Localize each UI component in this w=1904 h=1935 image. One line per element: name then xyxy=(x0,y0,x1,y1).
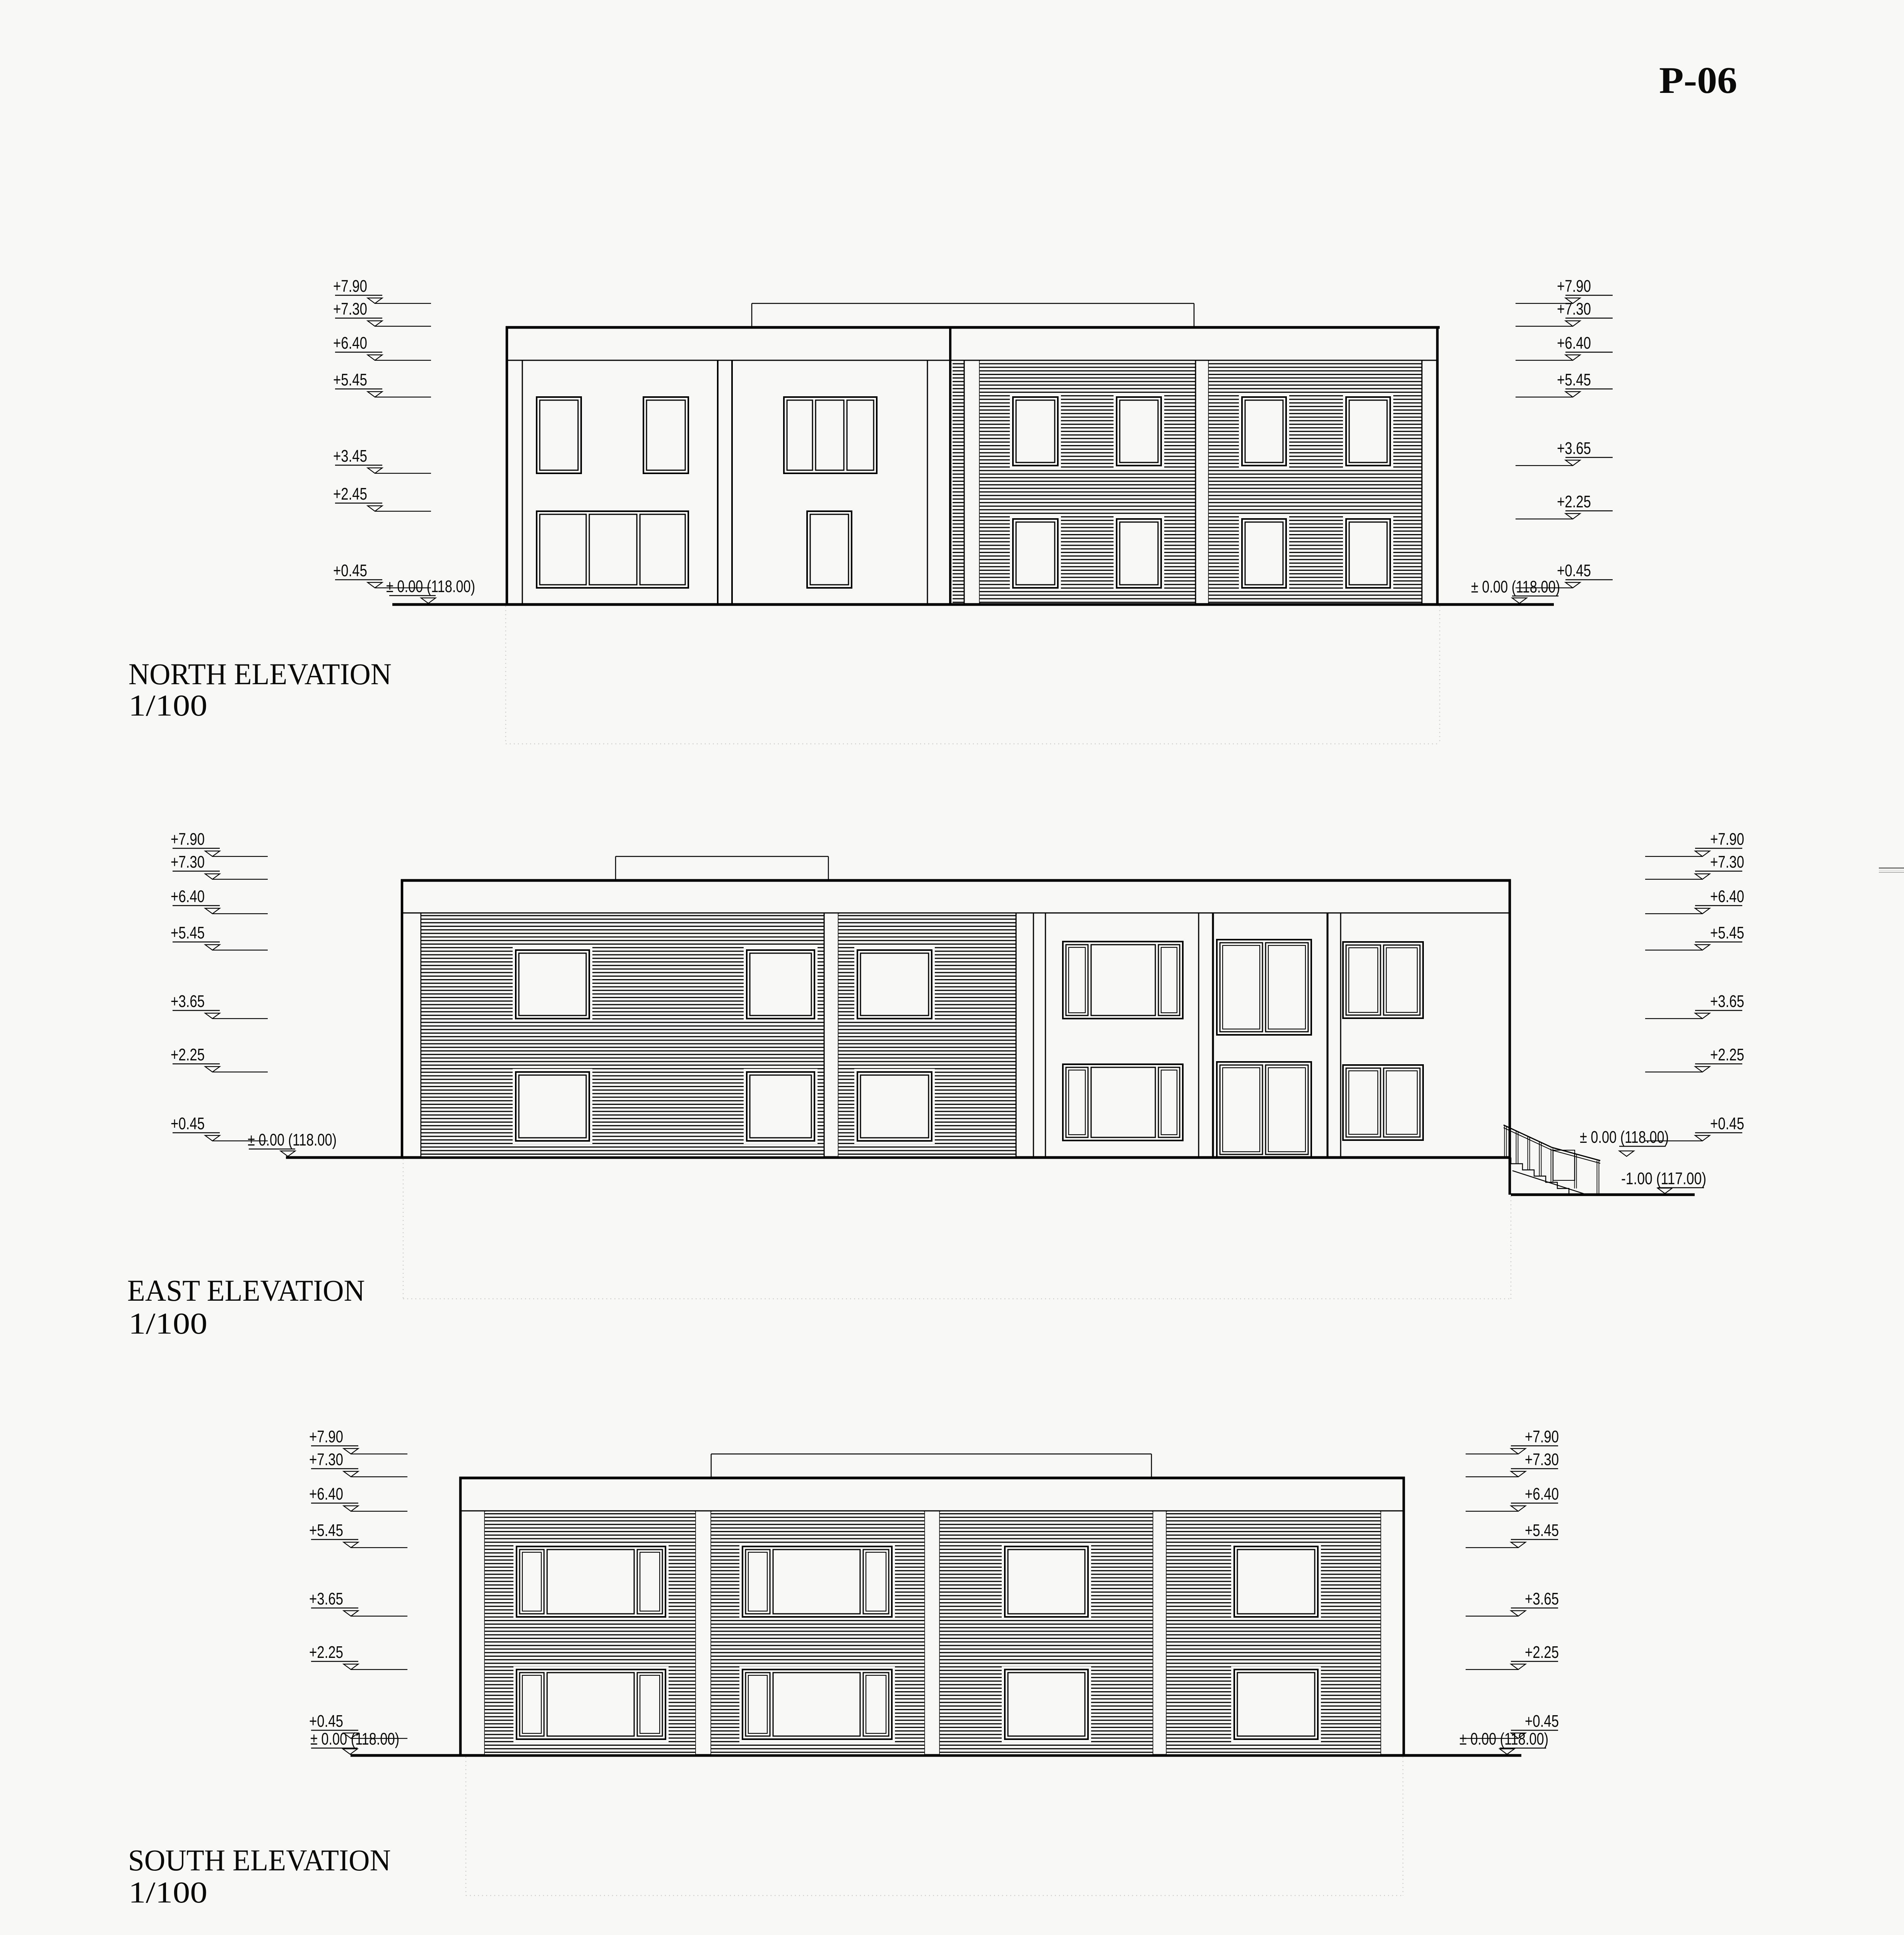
svg-text:+2.25: +2.25 xyxy=(309,1643,343,1662)
svg-text:+5.45: +5.45 xyxy=(1557,370,1591,389)
svg-text:+6.40: +6.40 xyxy=(333,334,367,353)
svg-text:+7.30: +7.30 xyxy=(171,853,205,872)
svg-text:SOUTH ELEVATION: SOUTH ELEVATION xyxy=(128,1843,391,1877)
svg-text:+7.90: +7.90 xyxy=(1525,1427,1559,1446)
svg-text:+7.30: +7.30 xyxy=(309,1450,343,1469)
svg-text:± 0.00 (118.00): ± 0.00 (118.00) xyxy=(1471,577,1560,596)
svg-text:+2.25: +2.25 xyxy=(171,1045,205,1064)
svg-text:+7.90: +7.90 xyxy=(1710,830,1744,849)
svg-text:+0.45: +0.45 xyxy=(309,1712,343,1731)
svg-text:+2.25: +2.25 xyxy=(1710,1045,1744,1064)
svg-text:+7.30: +7.30 xyxy=(1557,300,1591,319)
svg-text:+6.40: +6.40 xyxy=(309,1485,343,1503)
svg-text:+7.90: +7.90 xyxy=(333,277,367,296)
svg-text:+3.45: +3.45 xyxy=(333,447,367,466)
svg-text:+5.45: +5.45 xyxy=(1710,923,1744,942)
svg-text:+7.30: +7.30 xyxy=(1710,853,1744,872)
svg-text:+0.45: +0.45 xyxy=(333,561,367,580)
svg-text:+3.65: +3.65 xyxy=(171,992,205,1011)
svg-text:1/100: 1/100 xyxy=(128,1875,207,1909)
svg-text:± 0.00 (118.00): ± 0.00 (118.00) xyxy=(386,577,475,596)
svg-text:+2.45: +2.45 xyxy=(333,485,367,503)
svg-text:+7.30: +7.30 xyxy=(333,300,367,319)
svg-text:EAST ELEVATION: EAST ELEVATION xyxy=(127,1274,365,1307)
svg-text:+2.25: +2.25 xyxy=(1525,1643,1559,1662)
svg-text:+7.90: +7.90 xyxy=(1557,277,1591,296)
svg-text:+6.40: +6.40 xyxy=(171,887,205,906)
svg-text:1/100: 1/100 xyxy=(128,688,207,722)
svg-text:+6.40: +6.40 xyxy=(1525,1485,1559,1503)
svg-text:1/100: 1/100 xyxy=(128,1307,207,1340)
svg-text:+7.90: +7.90 xyxy=(309,1427,343,1446)
svg-text:± 0.00 (118.00): ± 0.00 (118.00) xyxy=(248,1130,337,1149)
svg-text:+6.40: +6.40 xyxy=(1710,887,1744,906)
svg-text:± 0.00 (118.00): ± 0.00 (118.00) xyxy=(310,1730,399,1748)
svg-text:+5.45: +5.45 xyxy=(171,923,205,942)
svg-text:-1.00 (117.00): -1.00 (117.00) xyxy=(1621,1169,1706,1188)
svg-text:+0.45: +0.45 xyxy=(1525,1712,1559,1731)
svg-text:+7.90: +7.90 xyxy=(171,830,205,849)
svg-text:+3.65: +3.65 xyxy=(1525,1589,1559,1608)
svg-text:+0.45: +0.45 xyxy=(171,1114,205,1133)
svg-text:+5.45: +5.45 xyxy=(1525,1521,1559,1540)
svg-text:± 0.00 (118.00): ± 0.00 (118.00) xyxy=(1459,1730,1548,1748)
svg-text:+0.45: +0.45 xyxy=(1710,1114,1744,1133)
svg-text:NORTH ELEVATION: NORTH ELEVATION xyxy=(128,657,392,691)
svg-text:+6.40: +6.40 xyxy=(1557,334,1591,353)
svg-text:+5.45: +5.45 xyxy=(309,1521,343,1540)
svg-text:P-06: P-06 xyxy=(1659,60,1737,101)
svg-text:+2.25: +2.25 xyxy=(1557,492,1591,511)
svg-text:+0.45: +0.45 xyxy=(1557,561,1591,580)
svg-text:+5.45: +5.45 xyxy=(333,370,367,389)
svg-text:+3.65: +3.65 xyxy=(1557,439,1591,458)
svg-text:+3.65: +3.65 xyxy=(1710,992,1744,1011)
svg-text:+3.65: +3.65 xyxy=(309,1589,343,1608)
svg-text:± 0.00 (118.00): ± 0.00 (118.00) xyxy=(1580,1128,1669,1147)
svg-text:+7.30: +7.30 xyxy=(1525,1450,1559,1469)
